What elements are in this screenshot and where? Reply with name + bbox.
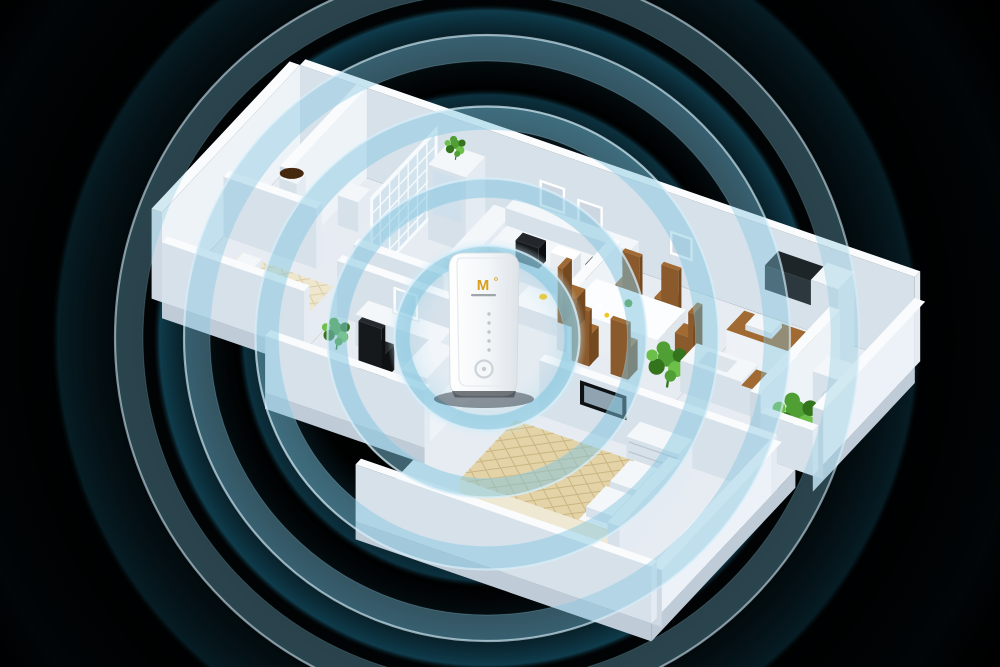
dining-plant xyxy=(649,359,665,375)
round-side-table-top xyxy=(280,168,304,179)
wps-button-dot xyxy=(482,367,486,371)
dining-plant xyxy=(646,349,658,361)
led-indicator xyxy=(487,312,490,315)
led-indicator xyxy=(487,321,490,324)
ac-top-plant xyxy=(454,151,460,157)
ac-top-plant xyxy=(450,136,457,143)
cup xyxy=(604,313,609,318)
led-indicator xyxy=(487,339,490,342)
floorplan-scene: M xyxy=(0,0,1000,667)
led-indicator xyxy=(487,330,490,333)
device-base xyxy=(452,391,516,398)
ac-top-plant xyxy=(445,140,451,146)
dining-plant xyxy=(657,341,671,355)
dining-plant xyxy=(665,370,677,382)
balcony-plant xyxy=(784,393,800,409)
brand-tagline-blur xyxy=(471,294,496,296)
ac-top-plant xyxy=(446,145,454,153)
led-indicator xyxy=(487,348,490,351)
ac-top-plant xyxy=(458,139,465,146)
back-wall-cap xyxy=(915,271,920,367)
illustration-canvas: M xyxy=(0,0,1000,667)
left-wing-south-wall-cap xyxy=(304,285,309,351)
plate xyxy=(597,303,603,309)
dining-chair xyxy=(589,308,592,366)
brand-logo-m: M xyxy=(477,277,490,294)
